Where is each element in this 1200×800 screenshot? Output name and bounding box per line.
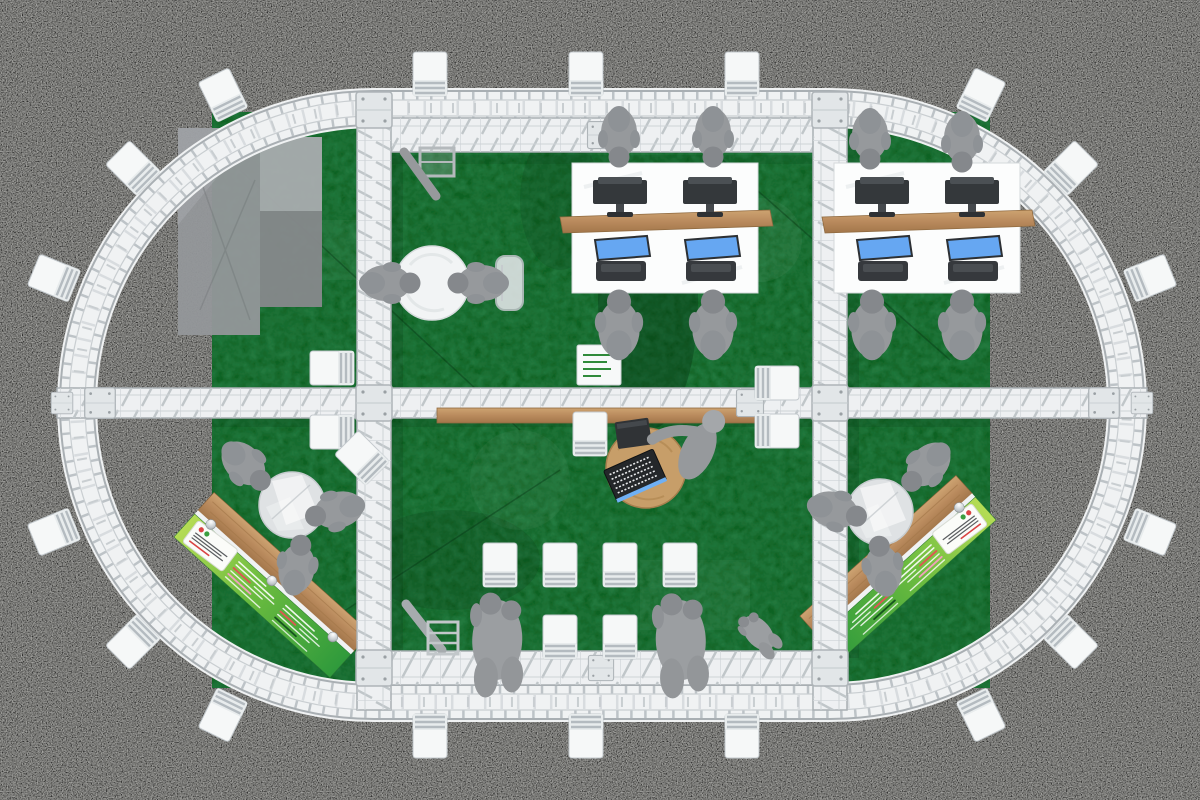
loose-chair xyxy=(755,414,799,448)
audience-chair xyxy=(543,615,577,659)
audience-chair xyxy=(543,543,577,587)
workstation-desk-left xyxy=(560,163,773,293)
loose-chair xyxy=(755,366,799,400)
loose-chair xyxy=(573,412,607,456)
audience-chair xyxy=(483,543,517,587)
workstation-desk-right xyxy=(822,163,1035,293)
perimeter-chair xyxy=(413,52,447,96)
people-standing xyxy=(467,592,526,699)
booth-top-view xyxy=(0,0,1200,800)
audience-chair xyxy=(603,615,637,659)
perimeter-chair xyxy=(725,714,759,758)
audience-chair xyxy=(663,543,697,587)
booth-render: Top view 3D render of an oval truss exhi… xyxy=(0,0,1200,800)
loose-chair xyxy=(310,351,354,385)
perimeter-chair xyxy=(569,714,603,758)
perimeter-chair xyxy=(413,714,447,758)
perimeter-chair xyxy=(725,52,759,96)
perimeter-chair xyxy=(569,52,603,96)
audience-chair xyxy=(603,543,637,587)
